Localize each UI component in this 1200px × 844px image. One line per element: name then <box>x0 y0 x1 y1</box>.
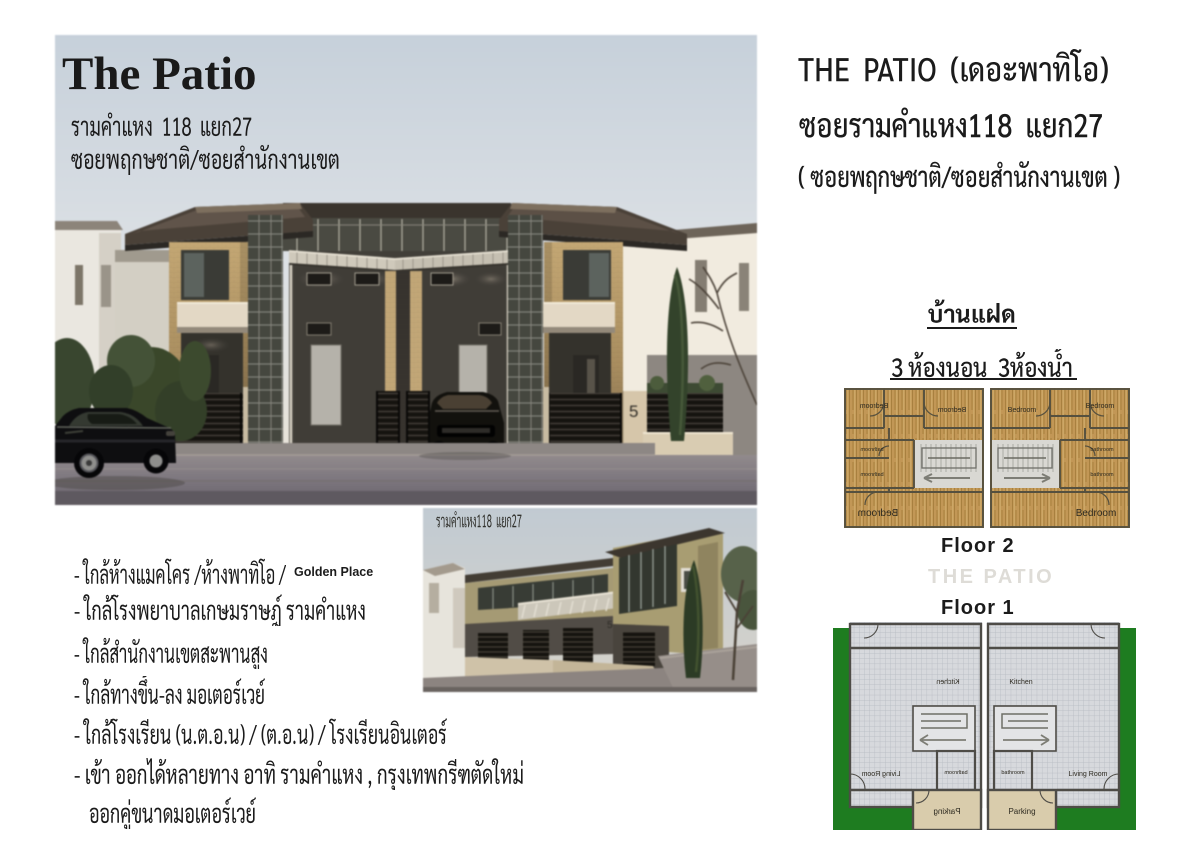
svg-text:Bedroom: Bedroom <box>1008 407 1037 414</box>
svg-text:Parking: Parking <box>1008 807 1035 816</box>
svg-text:Bedroom: Bedroom <box>1086 403 1115 410</box>
svg-text:Bedroom: Bedroom <box>860 403 889 410</box>
svg-text:5: 5 <box>607 620 613 631</box>
svg-text:bathroom: bathroom <box>944 770 968 776</box>
svg-text:bathroom: bathroom <box>1090 472 1114 478</box>
svg-text:bathroom: bathroom <box>1090 447 1114 453</box>
svg-text:Bedroom: Bedroom <box>858 508 899 519</box>
svg-text:Bedroom: Bedroom <box>1076 508 1117 519</box>
svg-text:Parking: Parking <box>933 807 960 816</box>
svg-text:bathroom: bathroom <box>860 447 884 453</box>
svg-text:Living Room: Living Room <box>861 771 900 778</box>
svg-text:bathroom: bathroom <box>860 472 884 478</box>
svg-text:Kitchen: Kitchen <box>1009 679 1032 686</box>
svg-text:5: 5 <box>629 402 638 421</box>
svg-text:Bedroom: Bedroom <box>938 407 967 414</box>
svg-text:Living Room: Living Room <box>1069 771 1108 778</box>
svg-text:bathroom: bathroom <box>1001 770 1025 776</box>
svg-text:Kitchen: Kitchen <box>936 679 959 686</box>
